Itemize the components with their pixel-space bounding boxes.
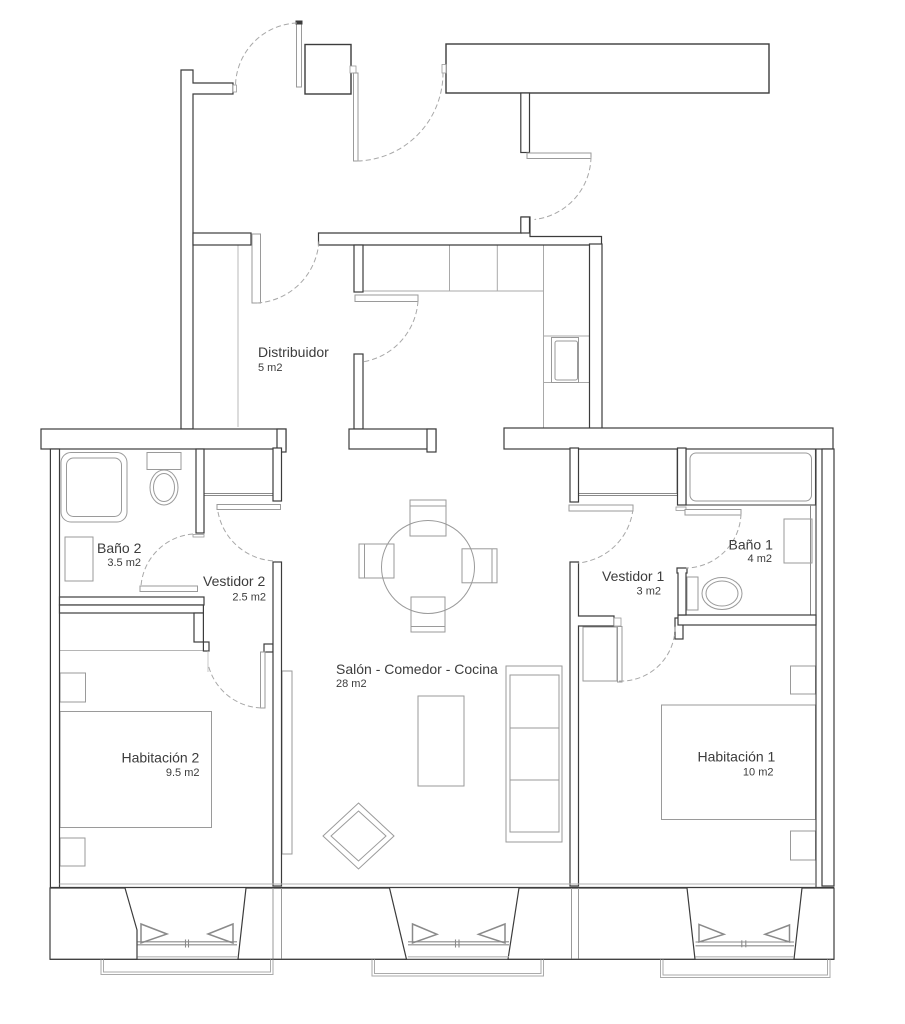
svg-text:Habitación 2: Habitación 2	[122, 750, 200, 766]
svg-text:3.5 m2: 3.5 m2	[107, 557, 141, 569]
svg-text:9.5 m2: 9.5 m2	[166, 767, 200, 779]
svg-text:2.5 m2: 2.5 m2	[232, 592, 266, 604]
svg-text:Baño 2: Baño 2	[97, 540, 142, 556]
svg-text:Vestidor 1: Vestidor 1	[602, 568, 664, 584]
svg-text:3 m2: 3 m2	[637, 586, 661, 598]
svg-text:5 m2: 5 m2	[258, 362, 282, 374]
svg-text:Salón - Comedor - Cocina: Salón - Comedor - Cocina	[336, 661, 498, 677]
svg-text:28 m2: 28 m2	[336, 678, 367, 690]
svg-text:Habitación 1: Habitación 1	[698, 749, 776, 765]
svg-text:Baño 1: Baño 1	[729, 537, 774, 553]
svg-text:4 m2: 4 m2	[748, 553, 772, 565]
svg-text:Vestidor 2: Vestidor 2	[203, 573, 265, 589]
svg-text:10 m2: 10 m2	[743, 767, 774, 779]
svg-text:Distribuidor: Distribuidor	[258, 344, 329, 360]
